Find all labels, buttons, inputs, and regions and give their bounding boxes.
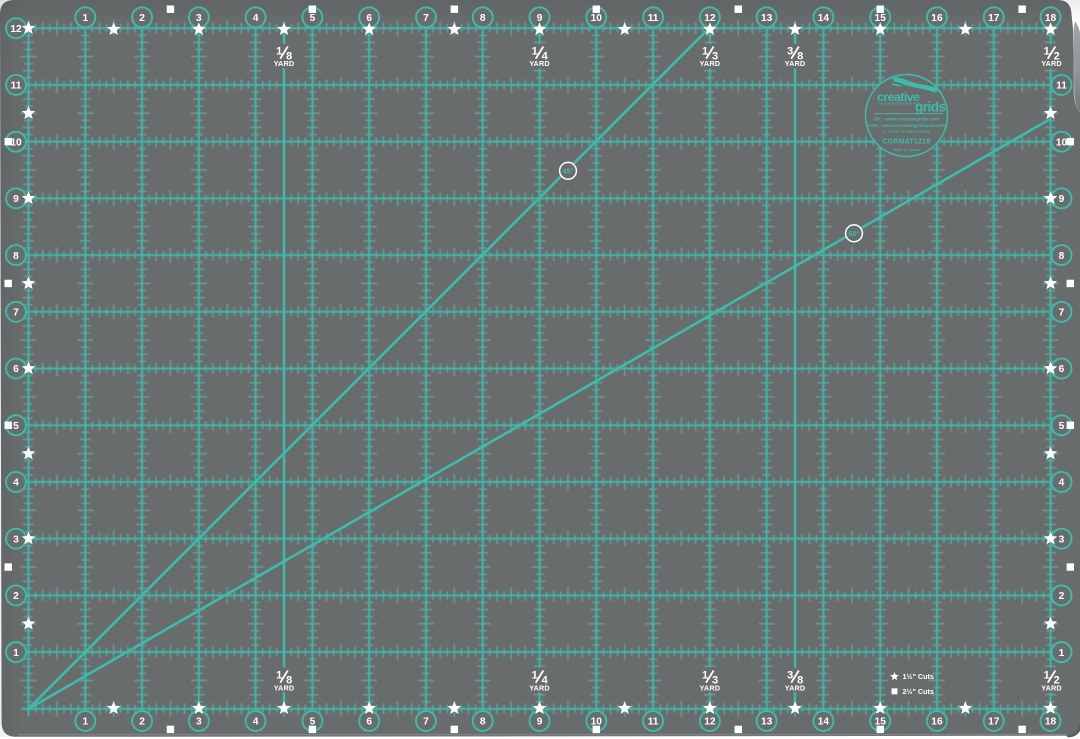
svg-text:4: 4 (253, 717, 259, 728)
svg-text:16: 16 (931, 13, 943, 24)
svg-text:YARD: YARD (529, 59, 550, 68)
svg-text:9: 9 (537, 717, 543, 728)
svg-text:UK : www.creativegrids.com: UK : www.creativegrids.com (874, 117, 941, 123)
svg-text:12: 12 (704, 13, 716, 24)
svg-text:4: 4 (13, 478, 19, 489)
svg-text:3: 3 (196, 717, 202, 728)
svg-text:1: 1 (13, 648, 19, 659)
svg-text:18: 18 (1045, 717, 1057, 728)
svg-text:13: 13 (761, 717, 773, 728)
svg-text:8: 8 (480, 13, 486, 24)
svg-text:11: 11 (648, 717, 659, 728)
svg-text:YARD: YARD (1041, 684, 1062, 693)
svg-text:1: 1 (82, 717, 88, 728)
svg-text:2: 2 (1059, 591, 1065, 602)
svg-text:1½" Cuts: 1½" Cuts (903, 672, 934, 681)
svg-text:2: 2 (13, 591, 19, 602)
svg-text:YARD: YARD (785, 59, 806, 68)
svg-text:YARD: YARD (529, 684, 550, 693)
svg-text:12: 12 (10, 24, 22, 35)
svg-text:grids: grids (915, 99, 946, 114)
svg-text:11: 11 (648, 13, 659, 24)
svg-text:9: 9 (13, 194, 19, 205)
svg-text:7: 7 (423, 717, 429, 728)
svg-text:YARD: YARD (274, 59, 295, 68)
svg-text:3: 3 (13, 534, 19, 545)
svg-text:2: 2 (139, 717, 145, 728)
svg-text:USA : www.creativegridsusa.com: USA : www.creativegridsusa.com (868, 123, 946, 129)
svg-text:14: 14 (818, 13, 830, 24)
svg-text:15: 15 (875, 13, 887, 24)
svg-text:6: 6 (13, 364, 19, 375)
svg-text:10: 10 (591, 13, 603, 24)
svg-text:CGRMAT1218: CGRMAT1218 (882, 139, 930, 146)
svg-text:8: 8 (13, 251, 19, 262)
svg-text:YARD: YARD (274, 684, 295, 693)
svg-text:YARD: YARD (1041, 59, 1062, 68)
svg-text:5: 5 (13, 421, 19, 432)
svg-text:1: 1 (1059, 648, 1065, 659)
svg-text:2: 2 (139, 13, 145, 24)
svg-text:17: 17 (988, 13, 1000, 24)
svg-text:YARD: YARD (785, 684, 806, 693)
svg-text:1: 1 (82, 13, 88, 24)
svg-text:10: 10 (1056, 137, 1068, 148)
svg-text:18: 18 (1045, 13, 1057, 24)
svg-text:YARD: YARD (700, 684, 721, 693)
svg-text:7: 7 (423, 13, 429, 24)
svg-text:YARD: YARD (700, 59, 721, 68)
svg-text:3: 3 (1059, 534, 1065, 545)
svg-text:9: 9 (537, 13, 543, 24)
svg-text:© 2016 Creative Grids: © 2016 Creative Grids (883, 128, 930, 134)
svg-text:7: 7 (13, 308, 19, 319)
svg-text:5: 5 (1059, 421, 1065, 432)
svg-text:11: 11 (1056, 81, 1067, 92)
svg-text:4: 4 (1059, 478, 1065, 489)
svg-text:60°: 60° (848, 229, 859, 238)
svg-text:7: 7 (1059, 308, 1065, 319)
svg-text:14: 14 (818, 717, 830, 728)
svg-text:17: 17 (988, 717, 1000, 728)
svg-text:11: 11 (11, 81, 22, 92)
svg-text:10: 10 (10, 137, 22, 148)
svg-text:8: 8 (1059, 251, 1065, 262)
svg-text:6: 6 (1059, 364, 1065, 375)
svg-text:The original NON-SLIP from: The original NON-SLIP from (878, 102, 921, 106)
svg-text:Made in Taiwan: Made in Taiwan (893, 147, 921, 152)
svg-text:2½" Cuts: 2½" Cuts (903, 687, 934, 696)
svg-text:45°: 45° (562, 167, 573, 176)
svg-text:5: 5 (310, 13, 316, 24)
svg-text:9: 9 (1059, 194, 1065, 205)
svg-text:4: 4 (253, 13, 259, 24)
svg-text:3: 3 (196, 13, 202, 24)
svg-text:6: 6 (366, 717, 372, 728)
svg-text:12: 12 (704, 717, 716, 728)
svg-text:6: 6 (366, 13, 372, 24)
svg-text:16: 16 (931, 717, 943, 728)
svg-text:13: 13 (761, 13, 773, 24)
svg-text:8: 8 (480, 717, 486, 728)
